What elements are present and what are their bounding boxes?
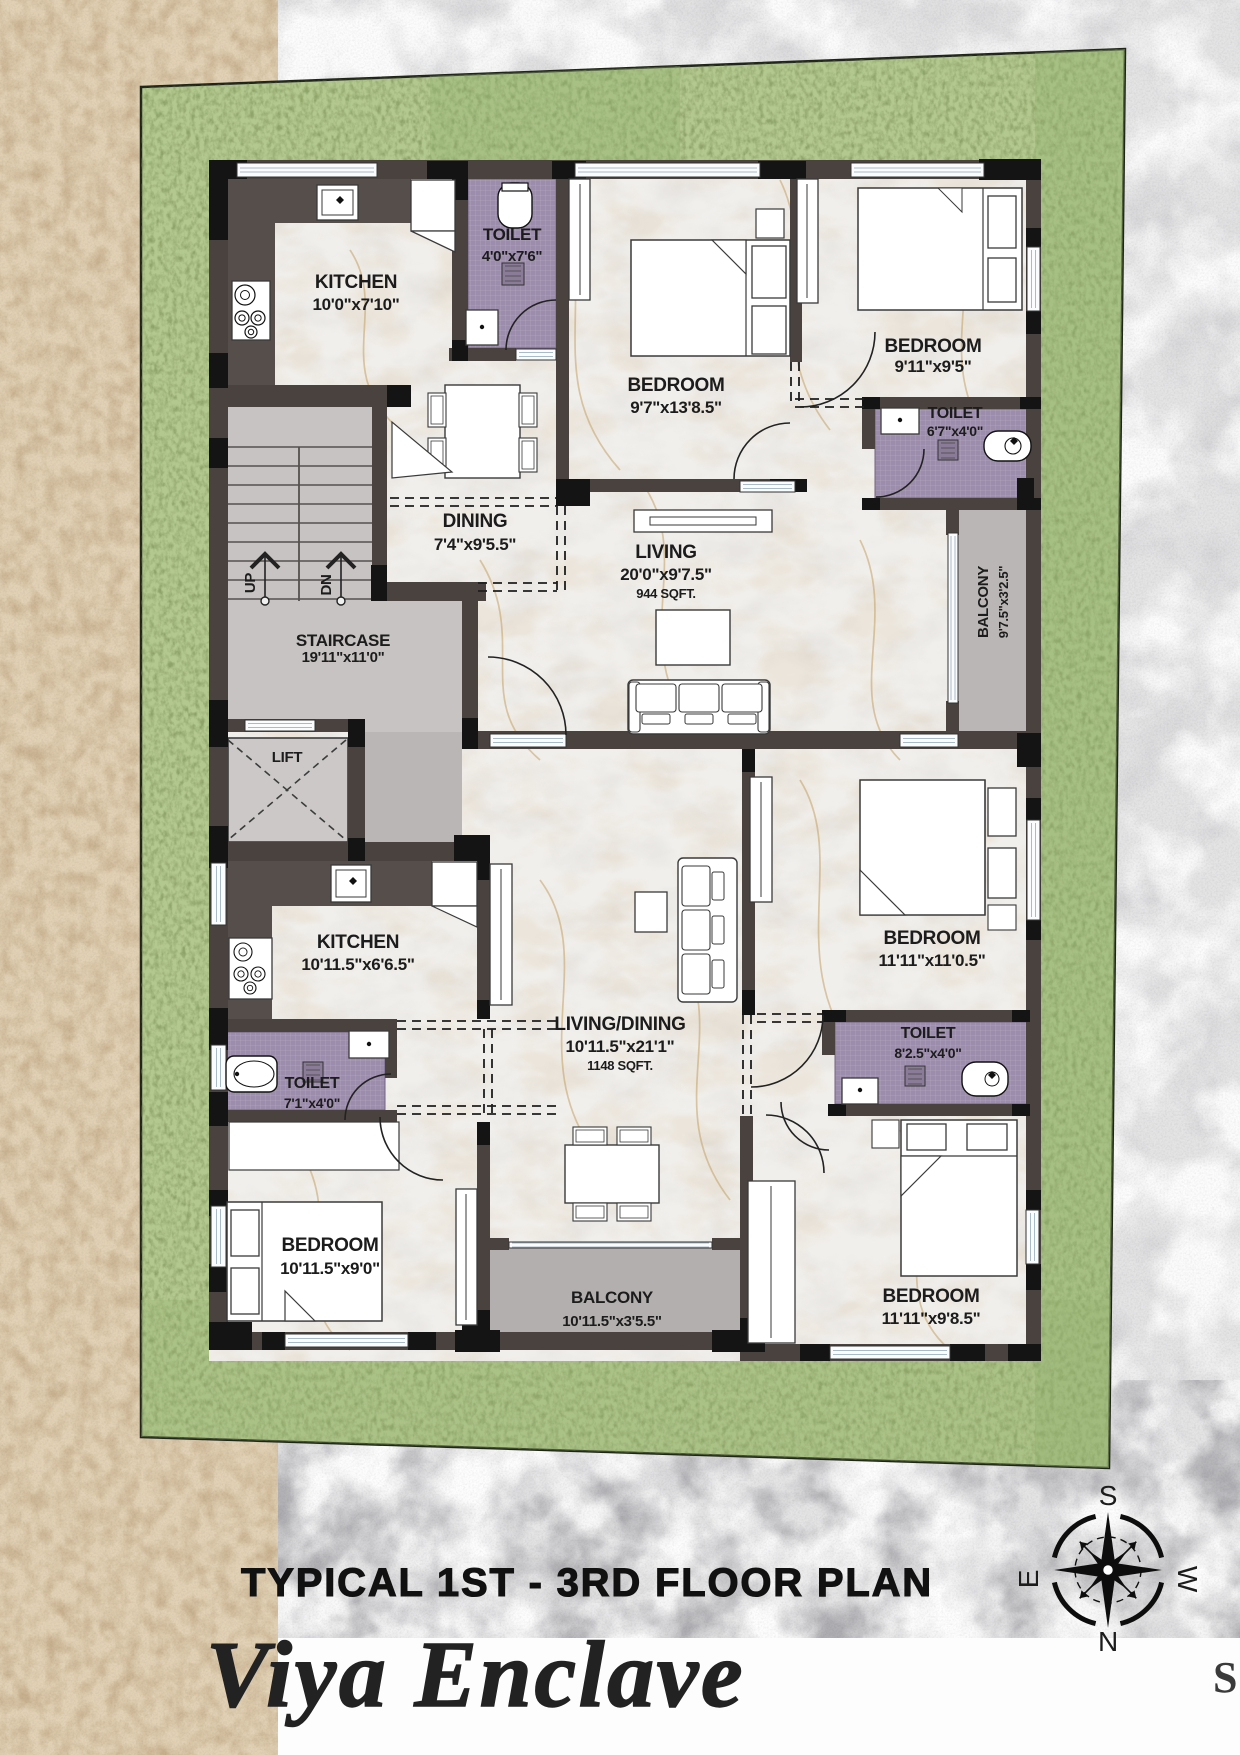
- svg-text:LIVING: LIVING: [635, 542, 697, 563]
- svg-text:UP: UP: [242, 573, 259, 594]
- svg-text:9'7"x13'8.5": 9'7"x13'8.5": [630, 398, 722, 417]
- svg-text:10'0"x7'10": 10'0"x7'10": [312, 295, 399, 314]
- svg-text:11'11"x11'0.5": 11'11"x11'0.5": [878, 951, 985, 970]
- svg-text:6'7"x4'0": 6'7"x4'0": [927, 423, 983, 439]
- svg-text:20'0"x9'7.5": 20'0"x9'7.5": [620, 565, 712, 584]
- svg-text:TOILET: TOILET: [285, 1075, 340, 1092]
- svg-text:8'2.5"x4'0": 8'2.5"x4'0": [894, 1045, 961, 1061]
- svg-text:DINING: DINING: [443, 511, 508, 532]
- svg-text:LIFT: LIFT: [272, 749, 303, 766]
- svg-text:TOILET: TOILET: [928, 405, 983, 422]
- svg-text:N: N: [1098, 1626, 1118, 1657]
- svg-text:BEDROOM: BEDROOM: [882, 1286, 979, 1307]
- svg-text:11'11"x9'8.5": 11'11"x9'8.5": [882, 1309, 981, 1328]
- svg-text:BEDROOM: BEDROOM: [883, 928, 980, 949]
- svg-text:KITCHEN: KITCHEN: [317, 932, 399, 953]
- svg-text:10'11.5"x3'5.5": 10'11.5"x3'5.5": [562, 1313, 662, 1330]
- svg-text:TOILET: TOILET: [483, 225, 542, 244]
- svg-text:7'1"x4'0": 7'1"x4'0": [284, 1095, 340, 1111]
- svg-text:BEDROOM: BEDROOM: [281, 1235, 378, 1256]
- svg-text:LIVING/DINING: LIVING/DINING: [554, 1014, 685, 1035]
- svg-text:19'11"x11'0": 19'11"x11'0": [302, 649, 385, 666]
- svg-text:9'11"x9'5": 9'11"x9'5": [895, 357, 972, 376]
- svg-text:10'11.5"x6'6.5": 10'11.5"x6'6.5": [301, 955, 414, 974]
- svg-text:DN: DN: [318, 574, 335, 595]
- svg-text:S: S: [1213, 1653, 1237, 1702]
- svg-text:BALCONY: BALCONY: [975, 566, 992, 638]
- svg-text:7'4"x9'5.5": 7'4"x9'5.5": [434, 535, 516, 554]
- svg-text:4'0"x7'6": 4'0"x7'6": [482, 248, 543, 265]
- svg-text:TYPICAL 1ST - 3RD FLOOR PLAN: TYPICAL 1ST - 3RD FLOOR PLAN: [241, 1561, 933, 1605]
- svg-text:BEDROOM: BEDROOM: [627, 375, 724, 396]
- svg-text:944 SQFT.: 944 SQFT.: [636, 586, 695, 601]
- svg-text:BEDROOM: BEDROOM: [884, 336, 981, 357]
- svg-text:9'7.5"x3'2.5": 9'7.5"x3'2.5": [996, 566, 1011, 639]
- svg-text:KITCHEN: KITCHEN: [315, 272, 397, 293]
- svg-text:10'11.5"x9'0": 10'11.5"x9'0": [280, 1259, 380, 1278]
- svg-text:BALCONY: BALCONY: [571, 1288, 654, 1307]
- svg-text:Viya Enclave: Viya Enclave: [206, 1623, 745, 1727]
- svg-text:W: W: [1172, 1566, 1203, 1593]
- svg-text:TOILET: TOILET: [901, 1025, 956, 1042]
- svg-text:1148 SQFT.: 1148 SQFT.: [587, 1058, 653, 1073]
- svg-text:10'11.5"x21'1": 10'11.5"x21'1": [566, 1037, 675, 1056]
- svg-text:STAIRCASE: STAIRCASE: [296, 631, 390, 650]
- svg-text:E: E: [1013, 1570, 1044, 1588]
- svg-text:S: S: [1099, 1480, 1117, 1511]
